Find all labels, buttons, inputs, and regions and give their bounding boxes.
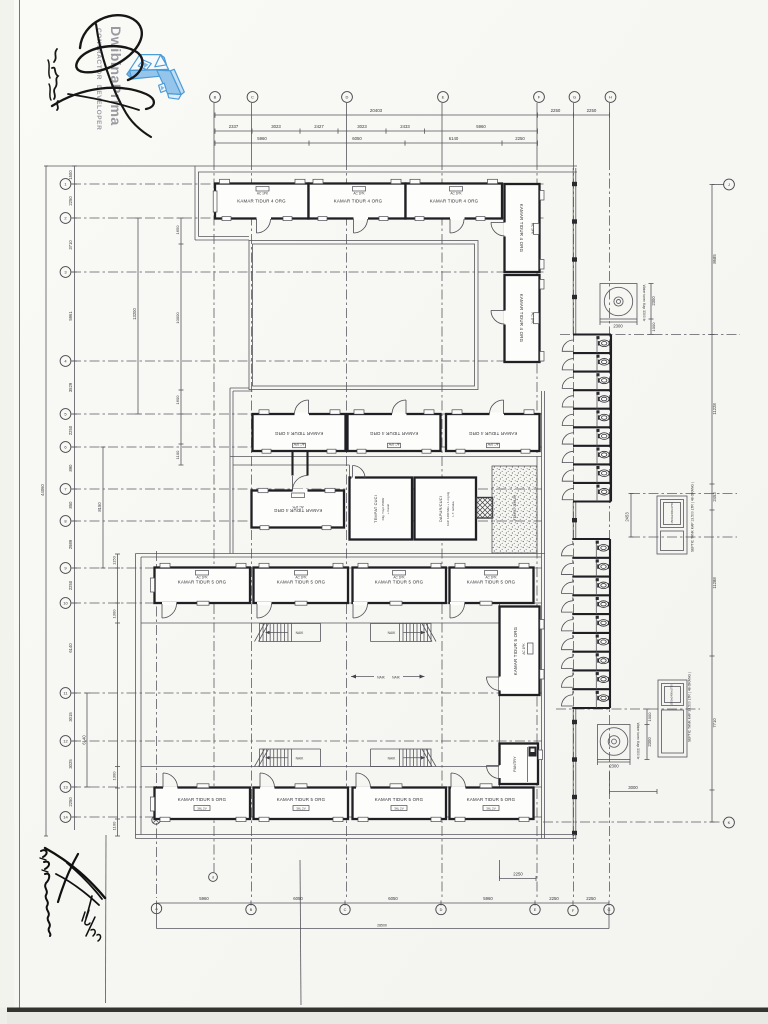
svg-text:3025: 3025 xyxy=(68,759,73,769)
svg-text:D: D xyxy=(440,908,443,912)
svg-text:KAMAR TIDUR 4 ORG: KAMAR TIDUR 4 ORG xyxy=(430,199,479,204)
svg-text:1300: 1300 xyxy=(112,609,117,619)
svg-text:KAMAR TIDUR 5 ORG: KAMAR TIDUR 5 ORG xyxy=(467,797,516,802)
svg-text:AC 1PK: AC 1PK xyxy=(387,442,399,446)
svg-text:2250: 2250 xyxy=(587,108,597,113)
svg-text:6050: 6050 xyxy=(293,896,303,901)
svg-text:36L 2V: 36L 2V xyxy=(296,807,305,811)
svg-text:AC 1PK: AC 1PK xyxy=(353,192,365,196)
svg-text:5960: 5960 xyxy=(483,896,493,901)
svg-text:AC 1PK: AC 1PK xyxy=(531,312,535,324)
svg-text:1000: 1000 xyxy=(651,322,656,332)
svg-text:1500x2400x1750: 1500x2400x1750 xyxy=(670,502,674,524)
svg-text:TEMPAT CUCI: TEMPAT CUCI xyxy=(373,495,378,523)
svg-text:KAMAR TIDUR 4 ORG: KAMAR TIDUR 4 ORG xyxy=(274,431,323,436)
svg-text:d: d xyxy=(212,876,214,880)
svg-text:K: K xyxy=(728,820,731,825)
svg-text:1500x2400x1750: 1500x2400x1750 xyxy=(670,684,674,706)
svg-text:NAIK: NAIK xyxy=(388,756,396,760)
svg-text:8150: 8150 xyxy=(97,502,102,512)
svg-text:(TEMPAT JEMUR): (TEMPAT JEMUR) xyxy=(513,495,517,521)
svg-text:E: E xyxy=(442,95,445,100)
svg-text:KAMAR TIDUR 4 ORG: KAMAR TIDUR 4 ORG xyxy=(519,204,524,253)
svg-text:11288: 11288 xyxy=(712,577,717,589)
svg-text:2250: 2250 xyxy=(586,896,596,901)
svg-text:AC 1PK: AC 1PK xyxy=(531,223,535,235)
svg-text:KAMAR TIDUR 5 ORG: KAMAR TIDUR 5 ORG xyxy=(178,580,227,585)
svg-text:44060: 44060 xyxy=(40,484,45,496)
svg-text:AC 1PK: AC 1PK xyxy=(393,576,405,580)
svg-text:3000: 3000 xyxy=(628,785,638,790)
svg-text:5960: 5960 xyxy=(199,896,209,901)
svg-text:L.T. terbuka: L.T. terbuka xyxy=(451,501,455,516)
svg-text:1000: 1000 xyxy=(647,712,652,722)
svg-text:2250: 2250 xyxy=(513,872,523,877)
svg-text:NAIK: NAIK xyxy=(377,675,385,679)
svg-text:KAMAR TIDUR 5 ORG: KAMAR TIDUR 5 ORG xyxy=(375,797,424,802)
svg-text:G: G xyxy=(573,95,576,100)
svg-text:890: 890 xyxy=(68,464,73,472)
svg-text:6140: 6140 xyxy=(449,136,459,141)
svg-text:3529: 3529 xyxy=(68,382,73,392)
svg-text:2427: 2427 xyxy=(314,124,324,129)
svg-text:KAMAR TIDUR 5 ORG: KAMAR TIDUR 5 ORG xyxy=(513,626,518,675)
svg-text:D: D xyxy=(346,95,349,100)
svg-text:DAPUR/CUCI: DAPUR/CUCI xyxy=(438,496,443,522)
svg-text:B: B xyxy=(214,95,217,100)
svg-text:1300: 1300 xyxy=(112,771,117,781)
svg-text:AC 1PK: AC 1PK xyxy=(450,192,462,196)
svg-text:2250: 2250 xyxy=(68,425,73,435)
svg-text:NAIK: NAIK xyxy=(296,756,304,760)
svg-text:2250: 2250 xyxy=(551,108,561,113)
svg-text:J: J xyxy=(728,182,730,187)
svg-text:Water toren Kap 3300 ltr: Water toren Kap 3300 ltr xyxy=(636,723,640,761)
svg-text:10000: 10000 xyxy=(175,312,180,324)
svg-text:2250: 2250 xyxy=(515,136,525,141)
svg-text:6140: 6140 xyxy=(68,643,73,653)
svg-text:11228: 11228 xyxy=(712,403,717,415)
svg-text:PANTRY: PANTRY xyxy=(513,756,517,772)
svg-text:1600: 1600 xyxy=(175,395,180,405)
svg-text:KAMAR TIDUR 4 ORG: KAMAR TIDUR 4 ORG xyxy=(369,431,418,436)
svg-text:28500: 28500 xyxy=(377,924,387,928)
svg-text:8685: 8685 xyxy=(712,254,717,264)
svg-text:+ Kanal: + Kanal xyxy=(386,504,390,514)
svg-text:2300: 2300 xyxy=(651,296,656,306)
svg-text:SEPTIC TANK KAP 13.500 LTR ( 4: SEPTIC TANK KAP 13.500 LTR ( 48 ORANG ) xyxy=(691,482,695,552)
svg-text:1150: 1150 xyxy=(112,555,117,564)
svg-text:2337: 2337 xyxy=(229,124,239,129)
svg-text:AC 1PK: AC 1PK xyxy=(196,576,208,580)
svg-text:36L 2V: 36L 2V xyxy=(486,807,495,811)
svg-text:1100: 1100 xyxy=(112,821,117,830)
svg-text:AC 1PK: AC 1PK xyxy=(291,505,303,509)
svg-text:KAMAR TIDUR 5 ORG: KAMAR TIDUR 5 ORG xyxy=(277,797,326,802)
svg-text:Dilg. Tmpt 1500ltr: Dilg. Tmpt 1500ltr xyxy=(381,498,385,521)
svg-text:2250: 2250 xyxy=(68,196,73,206)
svg-text:2433: 2433 xyxy=(400,124,410,129)
svg-text:2300: 2300 xyxy=(609,764,619,769)
svg-text:13: 13 xyxy=(63,785,68,790)
svg-text:3015: 3015 xyxy=(68,712,73,722)
svg-text:20403: 20403 xyxy=(370,108,383,113)
svg-text:NAIK: NAIK xyxy=(392,675,400,679)
svg-text:NAIK: NAIK xyxy=(296,631,304,635)
svg-text:5960: 5960 xyxy=(476,124,486,129)
svg-text:1500: 1500 xyxy=(68,170,73,180)
svg-text:AC 1PK: AC 1PK xyxy=(485,576,497,580)
svg-text:2300: 2300 xyxy=(613,324,623,329)
svg-text:KAMAR TIDUR 5 ORG: KAMAR TIDUR 5 ORG xyxy=(375,580,424,585)
svg-text:7710: 7710 xyxy=(712,718,717,728)
svg-text:5961: 5961 xyxy=(68,311,73,321)
svg-text:NAIK: NAIK xyxy=(388,631,396,635)
svg-text:3023: 3023 xyxy=(271,124,281,129)
svg-text:3710: 3710 xyxy=(68,240,73,250)
svg-text:2453: 2453 xyxy=(625,512,630,522)
svg-text:2453: 2453 xyxy=(712,492,717,502)
svg-text:AC 1PK: AC 1PK xyxy=(257,192,269,196)
svg-text:1650: 1650 xyxy=(175,225,180,235)
svg-text:KAMAR TIDUR 4 ORG: KAMAR TIDUR 4 ORG xyxy=(334,199,383,204)
svg-text:2300: 2300 xyxy=(647,737,652,747)
svg-text:SEPTIC TANK KAP 33.500 LTR ( 4: SEPTIC TANK KAP 33.500 LTR ( 48 ORANG ) xyxy=(688,672,692,742)
svg-text:6140: 6140 xyxy=(82,735,87,745)
svg-text:KAMAR TIDUR 5 ORG: KAMAR TIDUR 5 ORG xyxy=(178,797,227,802)
svg-text:5960: 5960 xyxy=(257,136,267,141)
svg-text:2250: 2250 xyxy=(549,896,559,901)
svg-text:KAMAR TIDUR 4 ORG: KAMAR TIDUR 4 ORG xyxy=(519,294,524,343)
svg-text:E: E xyxy=(534,908,537,912)
svg-text:850: 850 xyxy=(68,501,73,509)
svg-text:36L 2V: 36L 2V xyxy=(394,807,403,811)
svg-text:KAMAR TIDUR 4 ORG: KAMAR TIDUR 4 ORG xyxy=(468,431,517,436)
svg-text:C: C xyxy=(344,908,347,912)
svg-text:Water toren Kap 3300 ltr: Water toren Kap 3300 ltr xyxy=(642,285,646,323)
svg-text:6050: 6050 xyxy=(352,136,362,141)
svg-text:2989: 2989 xyxy=(68,539,73,549)
svg-text:B: B xyxy=(250,908,253,912)
svg-text:C: C xyxy=(251,95,254,100)
svg-text:KAMAR TIDUR 5 ORG: KAMAR TIDUR 5 ORG xyxy=(467,580,516,585)
svg-text:KAP. 1400 Mkn + 1 org klg: KAP. 1400 Mkn + 1 org klg xyxy=(446,492,450,526)
svg-text:13200: 13200 xyxy=(132,308,137,320)
svg-text:12: 12 xyxy=(63,739,68,744)
svg-text:10: 10 xyxy=(63,601,68,606)
svg-text:AC 1PK: AC 1PK xyxy=(522,642,526,654)
svg-text:36L 2V: 36L 2V xyxy=(197,807,206,811)
svg-text:KAMAR TIDUR 5 ORG: KAMAR TIDUR 5 ORG xyxy=(277,580,326,585)
svg-text:1100: 1100 xyxy=(175,450,180,459)
svg-text:6050: 6050 xyxy=(388,896,398,901)
svg-text:2250: 2250 xyxy=(68,580,73,590)
svg-text:AC 1PK: AC 1PK xyxy=(295,576,307,580)
svg-text:14: 14 xyxy=(63,815,68,820)
svg-text:2250: 2250 xyxy=(68,797,73,807)
svg-text:3023: 3023 xyxy=(357,124,367,129)
svg-text:AC 1PK: AC 1PK xyxy=(486,442,498,446)
svg-text:H: H xyxy=(609,95,612,100)
svg-text:AC 1PK: AC 1PK xyxy=(292,442,304,446)
svg-text:KAMAR TIDUR 4 ORG: KAMAR TIDUR 4 ORG xyxy=(237,199,286,204)
